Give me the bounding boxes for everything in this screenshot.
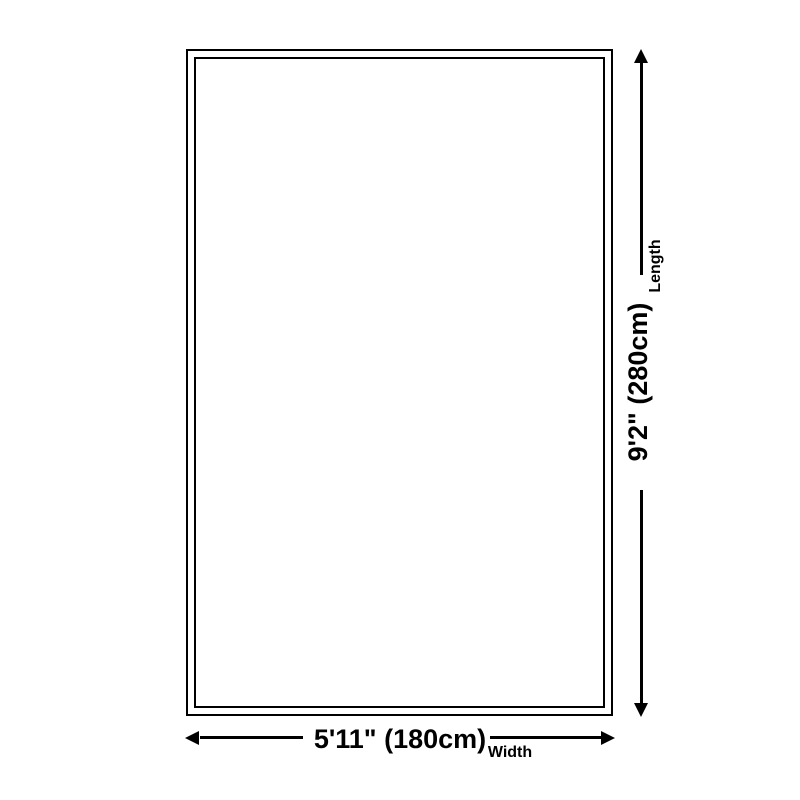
width-label: Width bbox=[488, 744, 532, 762]
rug-outline-inner bbox=[194, 57, 605, 708]
length-value: 9'2" (280cm) bbox=[624, 303, 654, 462]
arrow-down-icon bbox=[634, 703, 648, 717]
rug-dimension-diagram: 9'2" (280cm) Length 5'11" (180cm) Width bbox=[0, 0, 800, 800]
width-arrow-line-right bbox=[490, 736, 602, 739]
arrow-right-icon bbox=[601, 731, 615, 745]
arrow-up-icon bbox=[634, 49, 648, 63]
length-arrow-line-bottom bbox=[640, 490, 643, 703]
length-label: Length bbox=[647, 239, 665, 292]
rug-outline-outer bbox=[186, 49, 613, 716]
width-value: 5'11" (180cm) bbox=[314, 725, 486, 755]
length-arrow-line-top bbox=[640, 62, 643, 275]
width-arrow-line-left bbox=[200, 736, 303, 739]
arrow-left-icon bbox=[185, 731, 199, 745]
